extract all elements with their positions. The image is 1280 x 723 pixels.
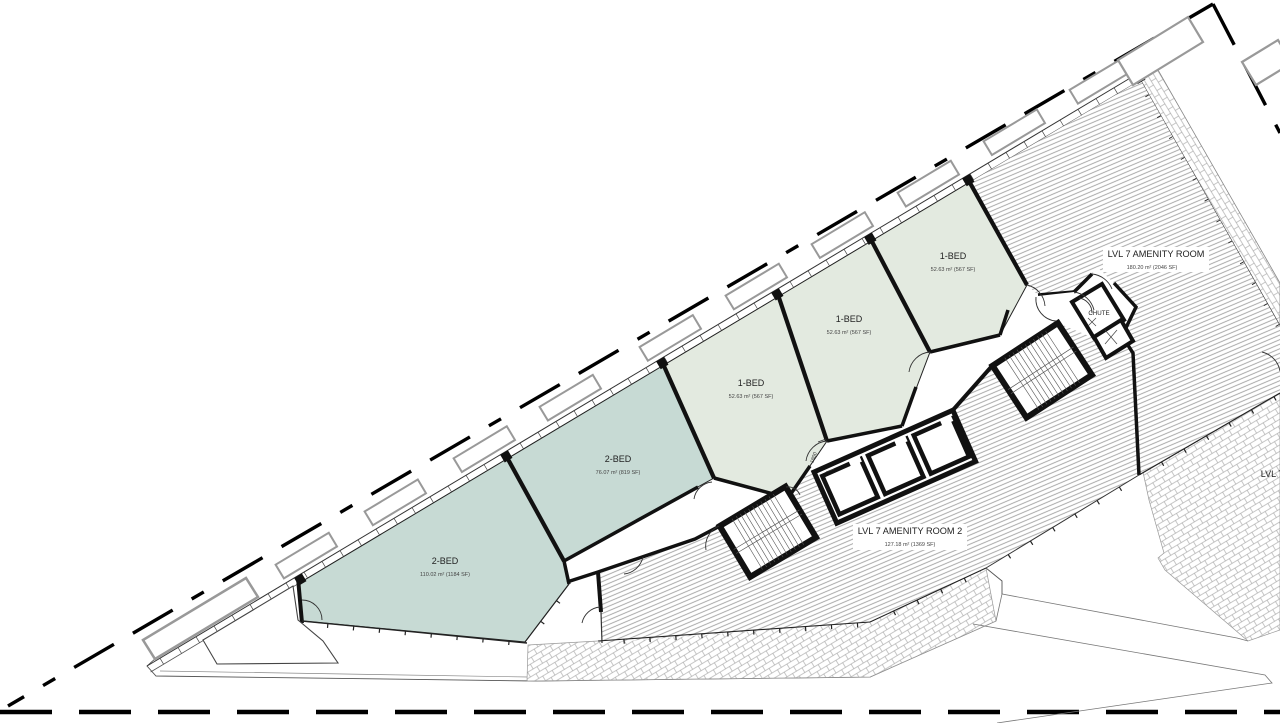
- svg-text:127.18 m² (1369 SF): 127.18 m² (1369 SF): [885, 542, 936, 548]
- svg-text:76.07 m² (819 SF): 76.07 m² (819 SF): [596, 470, 641, 476]
- svg-text:2-BED: 2-BED: [605, 454, 632, 464]
- svg-text:180.20 m² (2046 SF): 180.20 m² (2046 SF): [1127, 265, 1178, 271]
- svg-text:110.02 m² (1184 SF): 110.02 m² (1184 SF): [420, 572, 470, 578]
- svg-text:52.63 m² (567 SF): 52.63 m² (567 SF): [729, 394, 774, 400]
- svg-text:2-BED: 2-BED: [432, 556, 459, 566]
- svg-text:LVL 7: LVL 7: [1261, 469, 1280, 479]
- svg-text:LVL 7 AMENITY ROOM: LVL 7 AMENITY ROOM: [1108, 249, 1205, 259]
- svg-text:LVL 7 AMENITY ROOM 2: LVL 7 AMENITY ROOM 2: [858, 526, 963, 536]
- svg-text:52.63 m² (567 SF): 52.63 m² (567 SF): [827, 330, 872, 336]
- svg-text:52.63 m² (567 SF): 52.63 m² (567 SF): [931, 267, 976, 273]
- svg-text:1-BED: 1-BED: [940, 251, 967, 261]
- svg-text:1-BED: 1-BED: [738, 378, 765, 388]
- svg-text:1-BED: 1-BED: [836, 314, 863, 324]
